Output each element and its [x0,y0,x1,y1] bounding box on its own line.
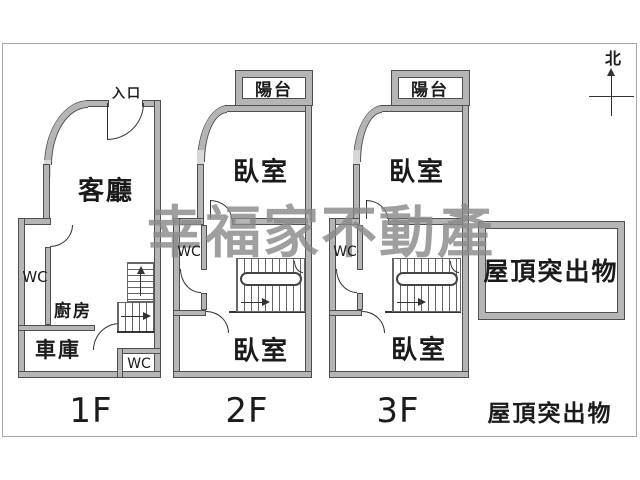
wall [381,105,469,112]
wall [117,348,123,378]
wc-label: WC [177,244,201,260]
wall [117,348,161,354]
wc-label: WC [22,268,47,286]
north-arrow-line [611,74,612,116]
rooftop-floor-label: 屋頂突出物 [488,394,613,428]
stairs-arrow-head [418,298,426,306]
stairs-rail [396,272,458,286]
stairs-arrow [121,316,143,317]
wall [45,247,51,325]
wall [201,293,207,310]
bedroom-label: 臥室 [389,152,445,189]
floor-label-3f: 3F [376,391,419,431]
wc-label: WC [333,244,357,260]
wall-thin [117,331,154,333]
entrance-label: 入口 [112,83,142,102]
bedroom-label: 臥室 [233,152,289,189]
stairs-arrow-head [143,312,151,320]
wall [173,371,312,378]
wall [18,371,161,378]
wall [18,218,25,378]
wc-label: WC [127,356,151,372]
balcony-label: 陽台 [255,76,293,101]
wall [43,164,50,220]
living-room-label: 客廳 [78,171,134,208]
stairs-arrow [397,302,418,303]
entrance-door-leaf [107,103,108,140]
balcony-label: 陽台 [411,76,449,101]
stairs-rail [240,272,302,286]
floor-label-2f: 2F [225,391,268,431]
wall [173,310,206,316]
floor-plan-image: 入口 客廳 WC 廚房 車庫 WC 1F [0,0,640,480]
wall [357,293,363,310]
stairs-arrow-head [262,298,270,306]
bedroom-label: 臥室 [233,331,289,368]
stairs-arrow [241,302,262,303]
floor-label-1f: 1F [69,391,112,431]
wall [225,105,312,112]
kitchen-label: 廚房 [54,297,92,322]
wall [329,310,362,316]
wall [329,371,469,378]
compass-cross-line [589,96,634,97]
north-label: 北 [605,45,621,69]
stairs-arrow-head [137,266,145,274]
wall [18,325,95,331]
bedroom-label: 臥室 [391,330,447,367]
garage-label: 車庫 [35,334,81,364]
wall [86,100,109,107]
rooftop-room-label: 屋頂突出物 [483,252,618,288]
